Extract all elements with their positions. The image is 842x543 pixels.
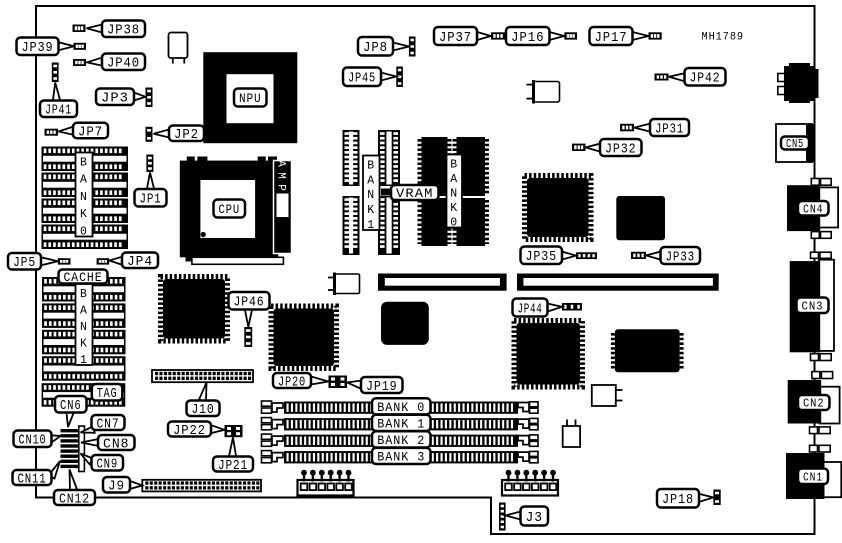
svg-text:N: N	[367, 189, 375, 202]
svg-text:1: 1	[367, 219, 375, 232]
svg-text:JP4: JP4	[127, 255, 153, 270]
svg-text:JP20: JP20	[278, 375, 306, 390]
svg-text:CN4: CN4	[803, 203, 824, 216]
svg-text:CPU: CPU	[219, 202, 241, 217]
svg-text:JP16: JP16	[511, 31, 545, 46]
svg-text:CN7: CN7	[97, 417, 120, 432]
svg-text:N: N	[450, 187, 458, 200]
svg-text:JP46: JP46	[234, 296, 265, 311]
svg-text:A: A	[450, 173, 458, 186]
svg-text:M: M	[275, 172, 287, 180]
svg-text:JP22: JP22	[173, 424, 206, 439]
svg-text:JP18: JP18	[662, 493, 694, 508]
svg-text:1: 1	[80, 354, 88, 367]
svg-text:CN11: CN11	[18, 472, 47, 487]
svg-text:JP39: JP39	[22, 41, 54, 56]
svg-text:JP7: JP7	[78, 125, 103, 140]
svg-text:JP2: JP2	[174, 128, 199, 143]
svg-text:JP5: JP5	[13, 256, 36, 271]
svg-text:JP31: JP31	[655, 122, 684, 137]
svg-text:A: A	[367, 174, 375, 187]
svg-text:BANK 1: BANK 1	[377, 417, 425, 431]
svg-text:0: 0	[80, 225, 88, 238]
svg-text:J9: J9	[108, 480, 125, 495]
svg-text:CACHE: CACHE	[64, 271, 103, 285]
svg-text:A: A	[80, 174, 88, 187]
svg-text:JP32: JP32	[605, 142, 637, 157]
svg-text:0: 0	[450, 216, 458, 229]
svg-text:N: N	[80, 321, 88, 334]
svg-text:JP41: JP41	[45, 104, 72, 119]
svg-text:JP44: JP44	[518, 302, 543, 317]
svg-text:JP8: JP8	[363, 41, 388, 56]
svg-text:TAG: TAG	[97, 387, 118, 402]
svg-text:CN5: CN5	[786, 138, 804, 151]
svg-text:JP19: JP19	[366, 380, 398, 395]
svg-text:K: K	[367, 204, 375, 217]
svg-text:J10: J10	[192, 403, 215, 418]
svg-text:CN2: CN2	[803, 398, 825, 411]
svg-text:B: B	[450, 158, 458, 171]
svg-text:BANK 0: BANK 0	[377, 401, 425, 415]
svg-text:JP38: JP38	[107, 24, 140, 39]
svg-text:A: A	[80, 304, 88, 317]
svg-text:JP45: JP45	[348, 72, 376, 87]
svg-text:CN12: CN12	[59, 492, 90, 507]
svg-text:B: B	[367, 159, 375, 172]
svg-text:JP37: JP37	[439, 31, 472, 46]
svg-text:JP17: JP17	[595, 31, 628, 46]
svg-text:JP21: JP21	[218, 459, 248, 474]
svg-text:K: K	[450, 202, 458, 215]
svg-text:CN9: CN9	[97, 458, 119, 473]
svg-text:CN10: CN10	[19, 434, 47, 449]
svg-text:CN6: CN6	[60, 399, 82, 414]
svg-text:B: B	[80, 288, 88, 301]
svg-text:CN1: CN1	[803, 471, 823, 484]
svg-text:NPU: NPU	[239, 91, 262, 106]
svg-text:CN3: CN3	[802, 300, 824, 313]
svg-text:JP33: JP33	[666, 250, 696, 265]
svg-text:JP40: JP40	[107, 57, 140, 72]
svg-text:JP3: JP3	[101, 92, 129, 107]
svg-text:J3: J3	[526, 511, 544, 526]
svg-text:BANK 2: BANK 2	[377, 434, 425, 448]
svg-text:B: B	[80, 156, 88, 169]
svg-text:BANK 3: BANK 3	[377, 450, 425, 464]
svg-text:A: A	[275, 160, 287, 168]
svg-text:JP42: JP42	[690, 72, 721, 87]
svg-text:P: P	[275, 184, 287, 192]
svg-text:K: K	[80, 337, 88, 350]
svg-text:N: N	[80, 191, 88, 204]
svg-text:CN8: CN8	[103, 437, 130, 452]
svg-text:JP35: JP35	[526, 250, 558, 265]
svg-text:VRAM: VRAM	[396, 187, 434, 201]
svg-text:JP1: JP1	[140, 193, 162, 208]
svg-text:MH1789: MH1789	[702, 32, 745, 44]
svg-text:K: K	[80, 208, 88, 221]
